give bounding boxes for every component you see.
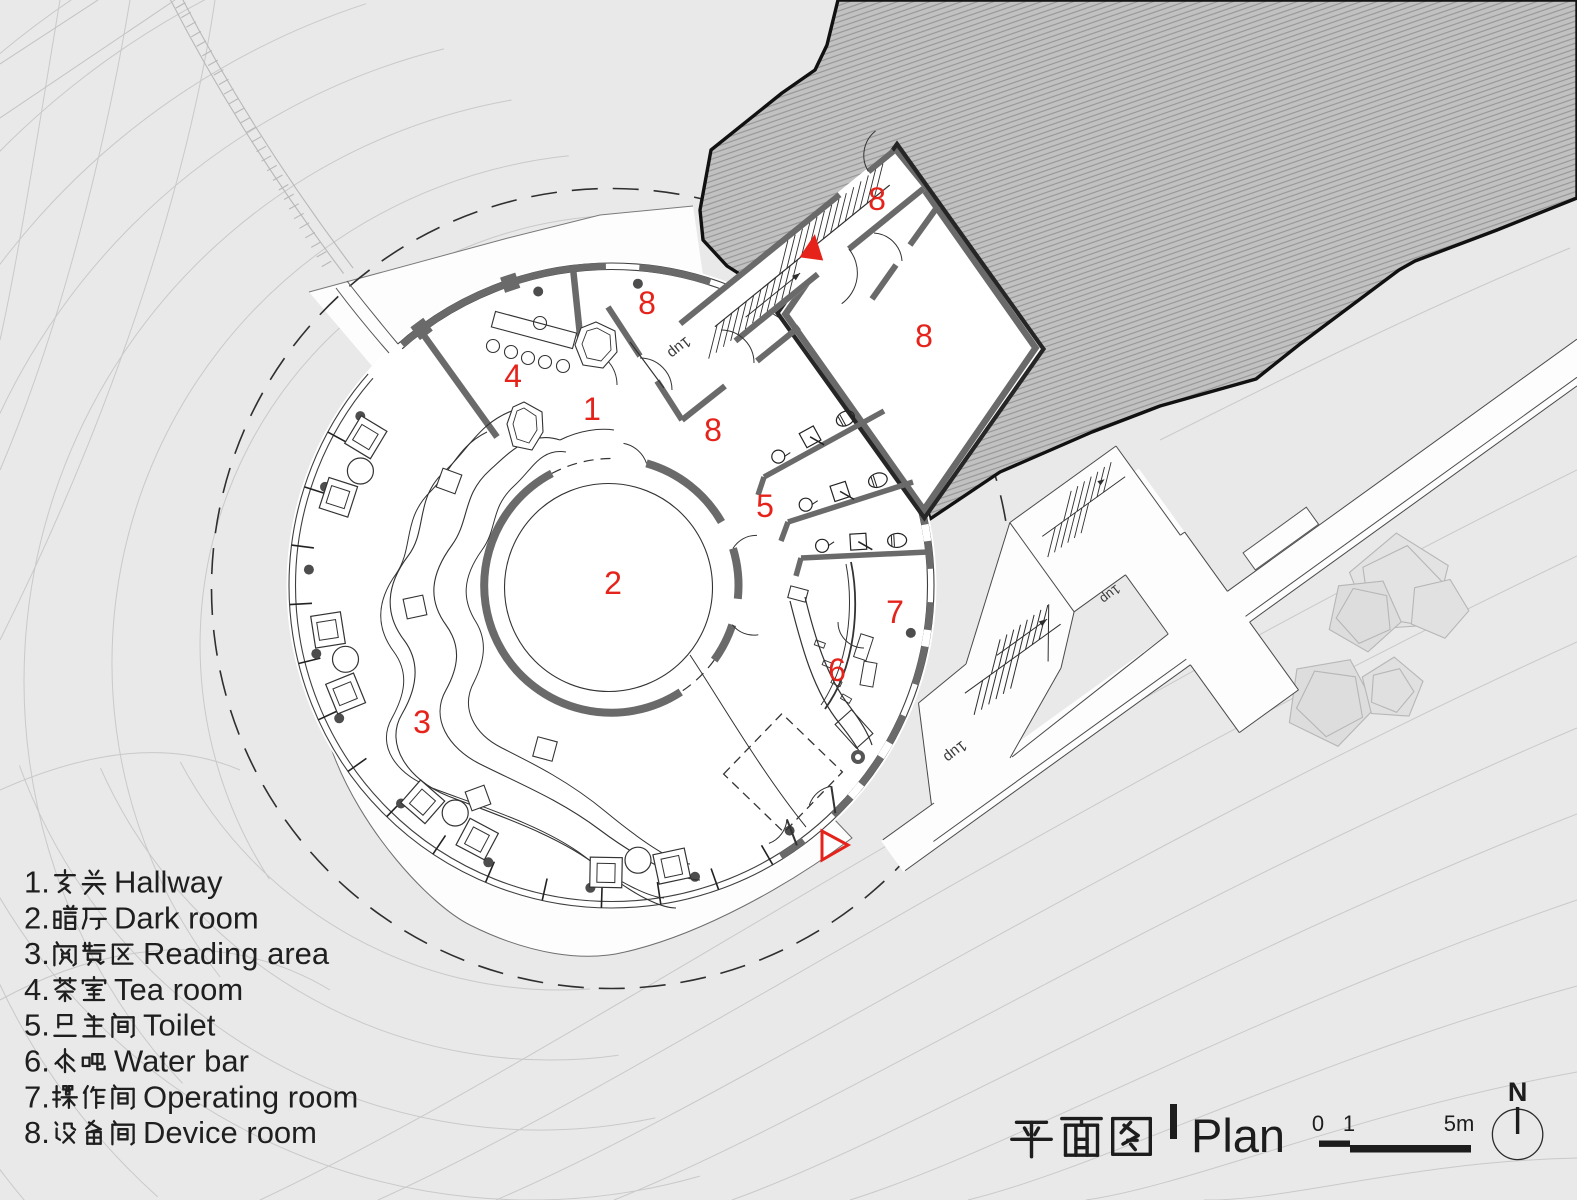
svg-text:8.: 8. — [24, 1115, 50, 1150]
svg-text:Reading area: Reading area — [143, 936, 330, 971]
svg-text:Toilet: Toilet — [143, 1008, 216, 1043]
svg-text:7.: 7. — [24, 1079, 50, 1114]
svg-text:Device room: Device room — [143, 1115, 317, 1150]
svg-text:7: 7 — [886, 594, 904, 630]
svg-text:1.: 1. — [24, 865, 50, 900]
svg-text:3: 3 — [413, 704, 431, 740]
svg-text:6.: 6. — [24, 1044, 50, 1079]
svg-text:8: 8 — [868, 181, 886, 217]
svg-text:4.: 4. — [24, 972, 50, 1007]
svg-text:6: 6 — [828, 652, 846, 688]
svg-text:Water bar: Water bar — [114, 1044, 249, 1079]
svg-text:5.: 5. — [24, 1008, 50, 1043]
svg-text:8: 8 — [704, 412, 722, 448]
svg-text:2.: 2. — [24, 900, 50, 935]
svg-text:8: 8 — [638, 285, 656, 321]
svg-text:1: 1 — [1343, 1111, 1355, 1136]
svg-text:Dark room: Dark room — [114, 900, 259, 935]
svg-text:Hallway: Hallway — [114, 865, 223, 900]
svg-text:2: 2 — [604, 565, 622, 601]
svg-text:Plan: Plan — [1191, 1109, 1285, 1162]
svg-text:Operating room: Operating room — [143, 1079, 358, 1114]
svg-text:N: N — [1508, 1077, 1528, 1107]
svg-text:5: 5 — [756, 488, 774, 524]
svg-text:3.: 3. — [24, 936, 50, 971]
svg-text:8: 8 — [915, 318, 933, 354]
svg-text:4: 4 — [504, 358, 522, 394]
svg-text:1: 1 — [583, 391, 601, 427]
svg-text:5m: 5m — [1444, 1111, 1475, 1136]
svg-text:Tea room: Tea room — [114, 972, 243, 1007]
svg-text:0: 0 — [1312, 1111, 1324, 1136]
